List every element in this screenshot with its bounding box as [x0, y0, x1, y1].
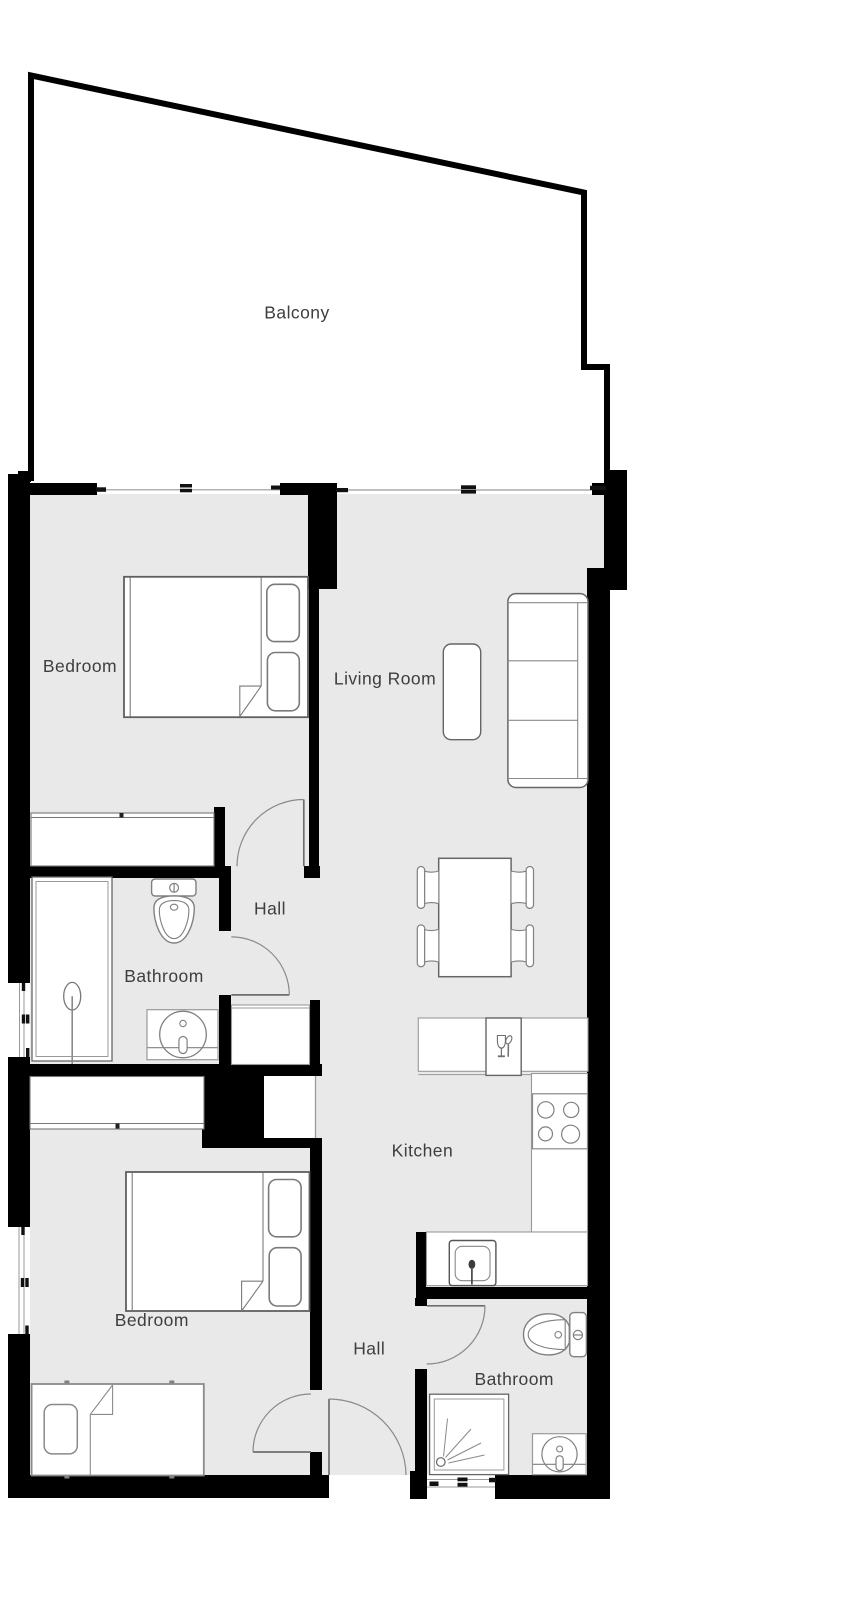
svg-text:Hall: Hall: [353, 1339, 385, 1359]
svg-text:Kitchen: Kitchen: [392, 1141, 454, 1161]
svg-text:Hall: Hall: [254, 899, 286, 919]
svg-text:Bathroom: Bathroom: [474, 1369, 553, 1389]
svg-text:Bedroom: Bedroom: [43, 656, 117, 676]
svg-text:Bedroom: Bedroom: [115, 1310, 189, 1330]
svg-text:Balcony: Balcony: [264, 303, 329, 323]
svg-text:Bathroom: Bathroom: [124, 966, 203, 986]
svg-text:Living Room: Living Room: [334, 669, 436, 689]
